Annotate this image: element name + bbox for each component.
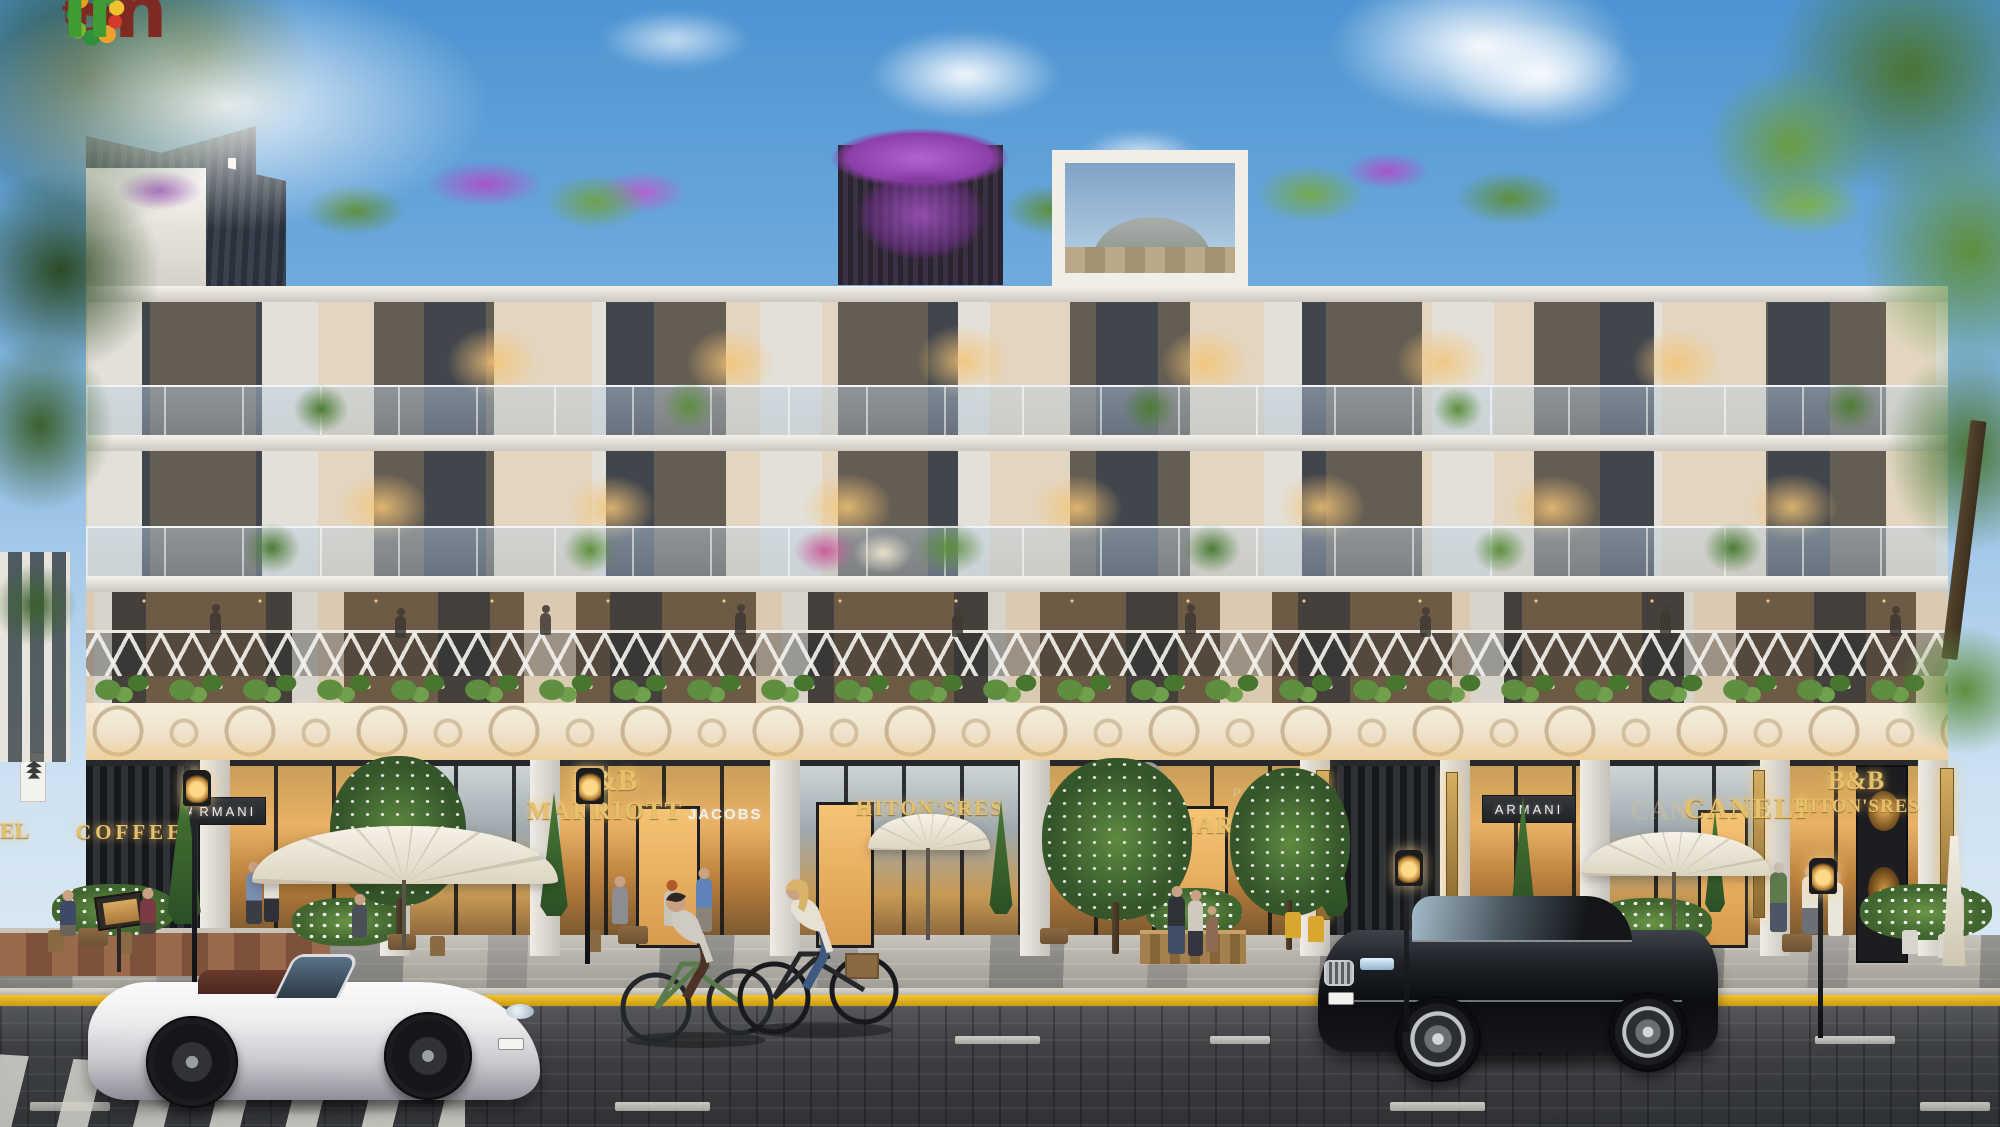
storefront-sign-jacobs: JACOBS <box>688 806 763 823</box>
lane-dash <box>1390 1102 1485 1111</box>
floor-slab <box>86 435 1948 451</box>
seated-patron <box>140 898 156 934</box>
lane-dash <box>1920 1102 1990 1111</box>
storefront-sign-hitonsres-right: HITON'SRES <box>1782 796 1932 818</box>
car-headlight <box>1360 958 1394 970</box>
seated-patron <box>60 900 76 936</box>
pedestrian <box>1770 872 1787 932</box>
storefront-sign-armani-right: ARMANI <box>1483 802 1575 817</box>
balcony-plant <box>1820 378 1880 434</box>
street-tree <box>1042 758 1192 920</box>
roof-garden-foliage <box>1450 168 1570 228</box>
cloud <box>600 10 750 70</box>
balcony-plant <box>560 524 620 576</box>
sholi-building-render: EL COFFEE ARMANI B&B MARRIOTT JACOBS HIT… <box>0 0 2000 1127</box>
car-grille <box>1324 960 1354 986</box>
bougainvillea <box>856 170 986 260</box>
floor-slab <box>86 286 1948 302</box>
seated-patron <box>352 904 367 938</box>
terrace-diner <box>1890 614 1901 636</box>
license-plate <box>1328 992 1354 1005</box>
cloud <box>870 30 1060 120</box>
right-tree-canopy <box>1700 60 1880 230</box>
balcony-plant <box>290 382 352 436</box>
eagle-glyph <box>26 761 42 781</box>
upper-floor <box>86 302 1948 435</box>
terrace-hedge <box>86 660 1948 708</box>
balcony-plant <box>1700 520 1766 576</box>
car-headlight <box>506 1004 534 1019</box>
storefront-sign-bb-right: B&B <box>1796 766 1916 796</box>
storefront-sign-can-reflection: CAN <box>1630 795 1689 826</box>
roof-garden-foliage <box>1250 162 1370 226</box>
umbrella-pole <box>926 848 930 940</box>
license-plate <box>498 1038 524 1050</box>
car-wheel <box>384 1012 472 1100</box>
terrace-diner <box>395 616 406 638</box>
cafe-table <box>78 928 108 946</box>
storefront-sign-bb: B&B <box>520 764 690 798</box>
rooftop-pavilion <box>1052 150 1248 286</box>
lane-dash <box>1210 1036 1270 1044</box>
umbrella-pole <box>402 880 406 950</box>
street-lamp <box>1818 888 1823 1038</box>
street-tree <box>1230 768 1350 916</box>
pedestrian <box>1168 896 1185 954</box>
middle-floor <box>86 451 1948 576</box>
glass-balustrade <box>86 526 1948 576</box>
storefront-sign-coffee: COFFEE <box>76 820 185 845</box>
terrace-diner <box>735 612 746 634</box>
vertical-gold-sign <box>1446 772 1458 910</box>
balcony-plant <box>1180 522 1244 576</box>
terrace-diner <box>1420 615 1431 637</box>
cafe-chair <box>1902 930 1918 954</box>
armani-right-signboard: ARMANI <box>1482 795 1576 823</box>
yellow-chair <box>1285 912 1301 938</box>
roof-garden-foliage <box>540 172 650 232</box>
cloud <box>1440 20 1640 130</box>
balcony-flowers <box>850 530 916 576</box>
street-lamp <box>585 798 590 964</box>
white-sports-car <box>88 946 540 1118</box>
lane-dash <box>615 1102 710 1111</box>
terrace-diner <box>1185 612 1196 634</box>
black-luxury-sedan <box>1318 896 1718 1072</box>
terrace-diner <box>952 615 963 637</box>
menu-page <box>103 899 140 926</box>
logo-word-li: li <box>62 0 111 42</box>
terrace-diner <box>1660 612 1671 634</box>
balcony-plant <box>1120 380 1180 436</box>
storefront-sign-el: EL <box>0 818 29 844</box>
storefront-sign-marriott: MARRIOTT <box>500 798 710 826</box>
cyclist-black-bike <box>728 860 913 1042</box>
lane-dash <box>1815 1036 1895 1044</box>
pedestrian-child <box>1206 916 1218 952</box>
balcony-plant <box>660 378 718 434</box>
pedestrian <box>1188 900 1203 956</box>
tree-trunk <box>1112 902 1119 954</box>
balcony-plant <box>1470 524 1530 576</box>
stone-wall <box>1065 247 1235 273</box>
glass-balustrade <box>86 385 1948 435</box>
balcony-plant <box>240 520 304 576</box>
decorative-frieze <box>86 703 1948 760</box>
car-glasshouse <box>1412 896 1632 942</box>
floor-slab <box>86 576 1948 592</box>
cafe-table <box>1782 934 1812 952</box>
car-wheel <box>1608 992 1688 1072</box>
street-lamp <box>1404 880 1409 1032</box>
balcony-plant <box>910 520 990 576</box>
balcony-plant <box>1430 384 1486 434</box>
lane-dash <box>955 1036 1040 1044</box>
terrace-diner <box>540 613 551 635</box>
terrace-diner <box>210 612 221 634</box>
car-wheel <box>146 1016 238 1108</box>
cafe-table <box>1040 928 1068 944</box>
white-flower-bed <box>1860 884 1992 940</box>
